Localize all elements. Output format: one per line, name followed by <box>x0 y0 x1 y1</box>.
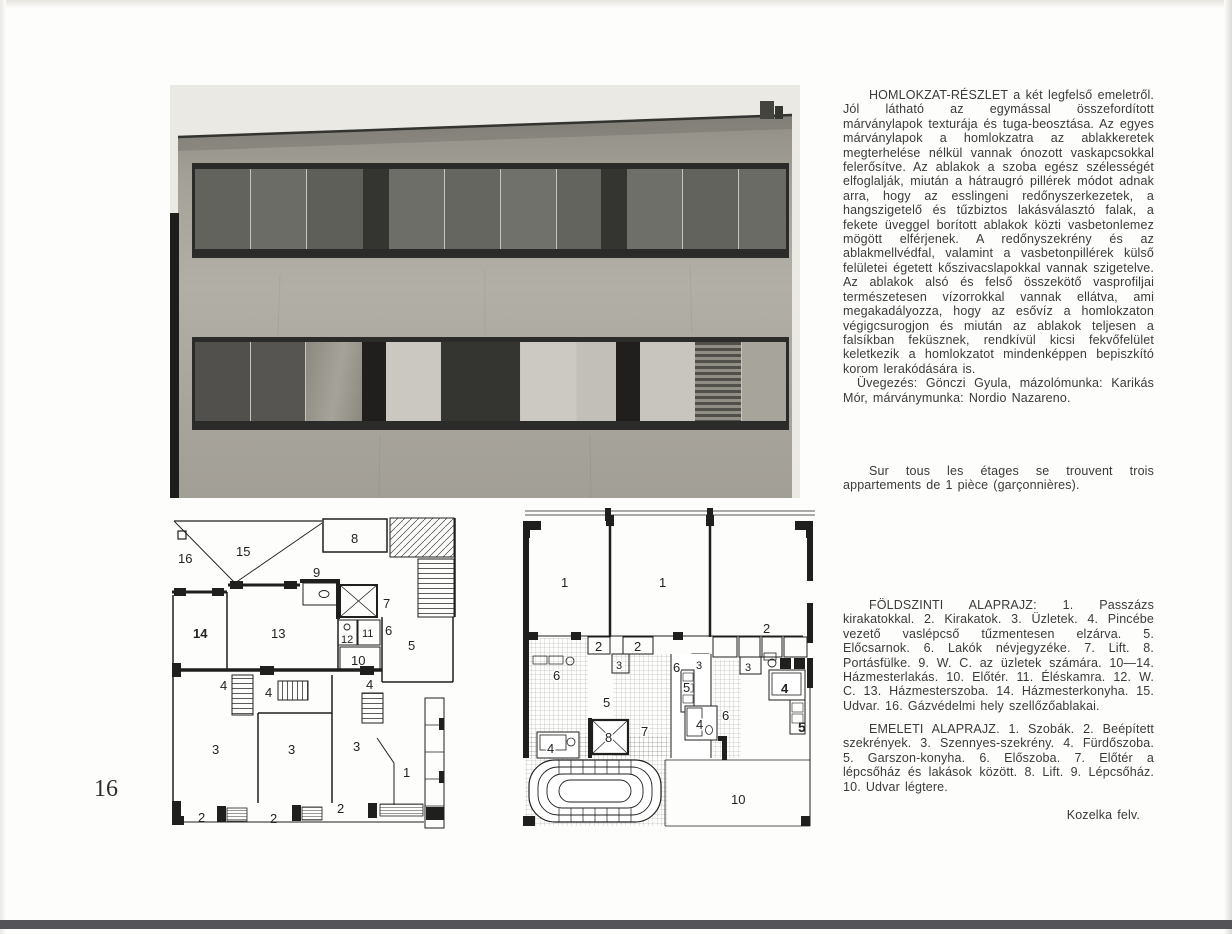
room-label: 5 <box>603 695 610 710</box>
room-label: 7 <box>641 724 648 739</box>
room-label: 2 <box>198 810 205 825</box>
room-label: 4 <box>547 741 554 756</box>
window-pane <box>389 169 445 249</box>
photo-chimney-2 <box>775 106 783 119</box>
ground-plan-caption: FÖLDSZINTI ALAPRAJZ: 1. Passzázs kirakat… <box>843 598 1154 713</box>
ground-plan-caption-text: FÖLDSZINTI ALAPRAJZ: 1. Passzázs kirakat… <box>843 598 1154 713</box>
room-label: 10 <box>731 792 745 807</box>
window-pane <box>627 169 683 249</box>
window-pane <box>307 169 363 249</box>
room-label: 14 <box>193 626 208 641</box>
room-label: 4 <box>696 717 703 732</box>
room-label: 5 <box>408 638 415 653</box>
window-pane <box>195 342 251 421</box>
room-label: 13 <box>271 626 285 641</box>
window-pane <box>445 169 501 249</box>
credits-paragraph: Üvegezés: Gönczi Gyula, mázolómunka: Kar… <box>843 376 1154 405</box>
room-label: 12 <box>341 634 353 646</box>
building-photo <box>170 85 800 498</box>
page-number: 16 <box>94 776 118 803</box>
room-label: 8 <box>351 531 358 546</box>
window-pane <box>557 169 601 249</box>
window-pier <box>363 169 389 249</box>
room-label: 7 <box>383 596 390 611</box>
magazine-page: { "page": { "number": "16" }, "colors": … <box>0 0 1232 934</box>
room-label: 3 <box>288 742 295 757</box>
photo-chimney <box>760 101 774 119</box>
room-label: 4 <box>265 685 272 700</box>
photo-credit: Kozelka felv. <box>843 808 1154 822</box>
scan-edge-right <box>1224 0 1232 934</box>
upper-plan-caption-text: EMELETI ALAPRAJZ. 1. Szobák. 2. Beépítet… <box>843 722 1154 794</box>
upper-floor-plan: 1 1 2 2 2 3 3 3 6 6 6 5 5 5 4 4 4 7 8 10 <box>513 508 823 848</box>
window-pane <box>521 342 577 421</box>
room-label: 6 <box>673 660 680 675</box>
upper-plan-caption: EMELETI ALAPRAJZ. 1. Szobák. 2. Beépítet… <box>843 722 1154 822</box>
facade-paragraph: HOMLOKZAT-RÉSZLET a két legfelső emeletr… <box>843 88 1154 376</box>
room-label: 2 <box>634 639 641 654</box>
room-label: 6 <box>553 668 560 683</box>
room-label: 10 <box>351 653 365 668</box>
window-pane <box>742 342 786 421</box>
scan-edge-left <box>0 0 6 934</box>
window-pane <box>501 169 557 249</box>
room-label: 3 <box>212 742 219 757</box>
room-label: 3 <box>696 660 702 672</box>
scan-edge-bottom <box>0 920 1232 929</box>
article-column: HOMLOKZAT-RÉSZLET a két legfelső emeletr… <box>843 88 1154 405</box>
window-pane <box>640 342 696 421</box>
room-label: 3 <box>616 660 622 672</box>
room-label: 3 <box>353 739 360 754</box>
window-pane <box>251 342 307 421</box>
scan-edge-top <box>0 0 1232 8</box>
room-label: 11 <box>362 628 373 640</box>
room-label: 4 <box>366 677 373 692</box>
photo-facade-drawing <box>170 85 800 498</box>
room-label: 3 <box>745 662 751 674</box>
room-label: 5 <box>798 719 806 735</box>
window-pane <box>577 342 616 421</box>
room-label: 5 <box>683 680 690 695</box>
ground-floor-plan: 16 15 8 9 7 14 13 12 11 6 10 5 4 4 4 3 3… <box>172 513 480 843</box>
window-pane <box>306 342 362 421</box>
room-label: 1 <box>403 765 410 780</box>
room-label: 6 <box>385 623 392 638</box>
window-pane <box>695 342 742 421</box>
room-label: 2 <box>337 801 344 816</box>
window-pane <box>683 169 739 249</box>
french-caption: Sur tous les étages se trouvent trois ap… <box>843 464 1154 493</box>
room-label: 4 <box>781 681 789 696</box>
window-pier <box>362 342 385 421</box>
window-pier <box>616 342 639 421</box>
room-label: 2 <box>763 621 770 636</box>
room-label: 2 <box>270 811 277 826</box>
room-label: 16 <box>178 551 192 566</box>
room-label: 6 <box>722 708 729 723</box>
ground-plan-room-labels: 16 15 8 9 7 14 13 12 11 6 10 5 4 4 4 3 3… <box>178 531 415 826</box>
room-label: 15 <box>236 544 250 559</box>
window-pier <box>601 169 627 249</box>
upper-window-band <box>192 163 789 258</box>
french-paragraph: Sur tous les étages se trouvent trois ap… <box>843 464 1154 493</box>
room-label: 1 <box>659 575 666 590</box>
room-label: 4 <box>220 678 227 693</box>
window-pane <box>739 169 786 249</box>
window-pane <box>195 169 251 249</box>
room-label: 8 <box>605 730 612 745</box>
window-pane <box>386 342 442 421</box>
photo-adjacent-building-edge <box>170 213 179 498</box>
window-pane <box>441 342 521 421</box>
room-label: 2 <box>595 639 602 654</box>
lower-window-band <box>192 337 789 430</box>
window-pane <box>251 169 307 249</box>
room-label: 9 <box>313 565 320 580</box>
room-label: 1 <box>561 575 568 590</box>
